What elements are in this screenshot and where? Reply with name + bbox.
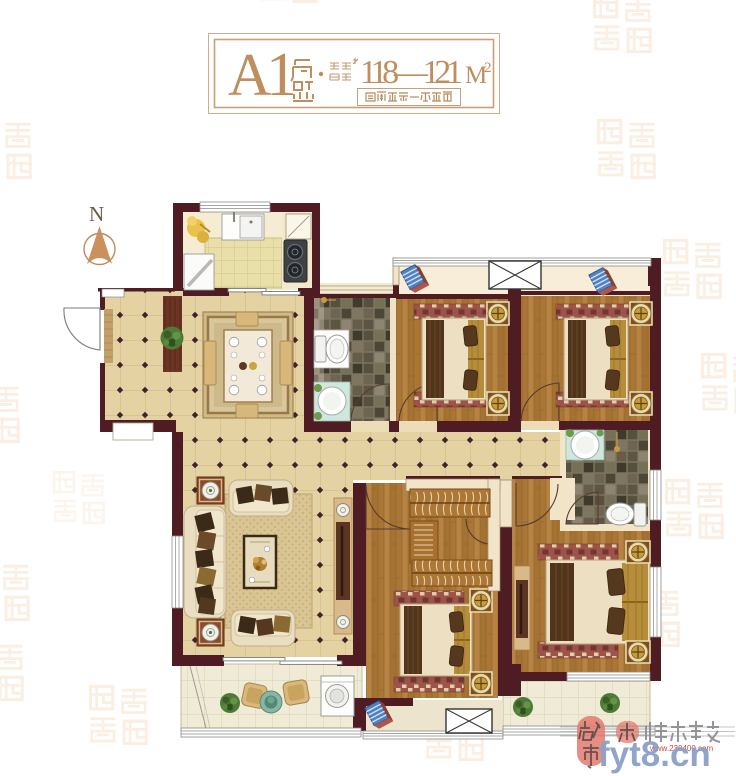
svg-text:2: 2 [484,60,492,76]
svg-text:N: N [89,202,104,226]
svg-text:A: A [228,42,271,108]
svg-text:fyt8.cn: fyt8.cn [598,735,711,774]
svg-text:118—121: 118—121 [360,54,463,91]
